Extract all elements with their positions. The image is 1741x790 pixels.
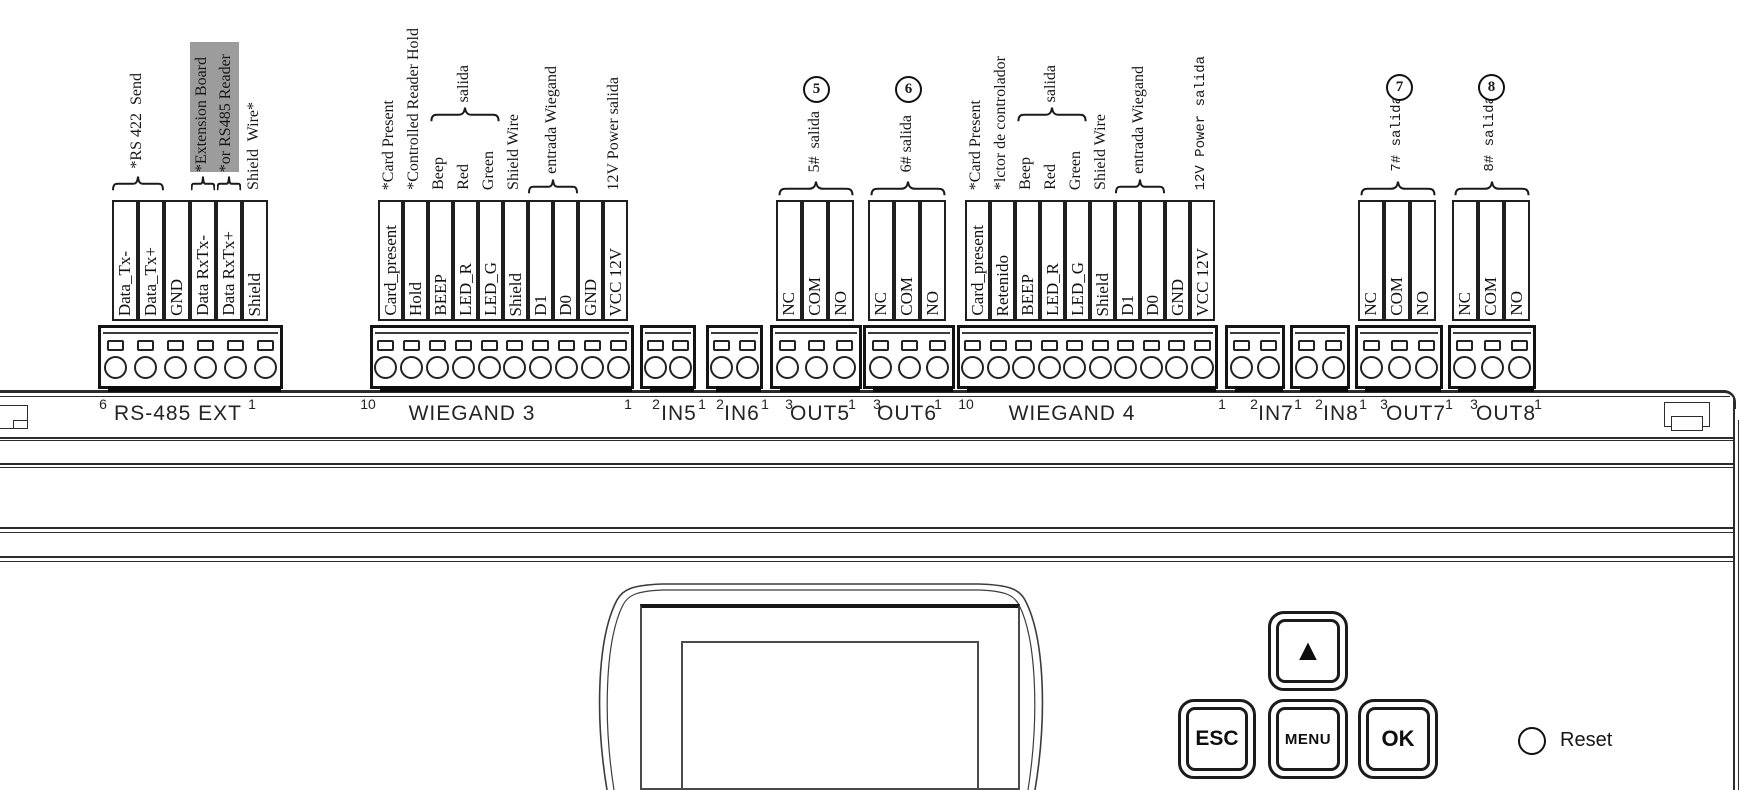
screw-icon [164, 356, 187, 379]
wire-clamp-icon [107, 340, 124, 351]
screw-icon [1481, 356, 1504, 379]
terminal-column: Data RxTx- [190, 200, 216, 321]
terminal-column: COM [1384, 200, 1410, 321]
terminal-label: VCC 12V [1194, 248, 1211, 316]
wire-clamp-icon [584, 340, 601, 351]
connector-wiegand4 [957, 325, 1218, 389]
pin-number: 1 [1359, 396, 1367, 412]
block-label-out7: OUT7 [1386, 402, 1446, 426]
pin-number: 1 [934, 396, 942, 412]
annotation-salida-out5: 5# salida [807, 111, 823, 172]
terminal-label: D0 [1144, 295, 1161, 316]
terminal-label: GND [582, 279, 599, 316]
connector-out8 [1448, 325, 1536, 389]
wire-clamp-icon [1117, 340, 1134, 351]
wire-clamp-icon [197, 340, 214, 351]
wire-clamp-icon [481, 340, 498, 351]
screw-icon [898, 356, 921, 379]
panel-groove-line [0, 467, 1735, 468]
pin-number: 1 [698, 396, 706, 412]
wire-clamp-icon [779, 340, 796, 351]
terminal-label: NO [924, 291, 941, 316]
screw-icon [833, 356, 856, 379]
screw-icon [1230, 356, 1253, 379]
annotation-controlled-reader-hold: *Controlled Reader Hold [406, 28, 422, 190]
up-arrow-icon: ▲ [1276, 619, 1340, 683]
terminal-pin [1411, 328, 1441, 379]
screw-icon [1360, 356, 1383, 379]
screw-icon [581, 356, 604, 379]
screw-icon [529, 356, 552, 379]
terminal-column: Data_Tx+ [138, 200, 164, 321]
pin-number: 1 [848, 396, 856, 412]
wire-clamp-icon [1298, 340, 1315, 351]
annotation-green-w4: Green [1068, 151, 1084, 190]
annotation-extension-board-line1: *Extension Board [194, 57, 210, 172]
wiring-diagram: Data_Tx- Data_Tx+ GND Data RxTx- Data Rx… [0, 0, 1741, 790]
circled-number-6: 6 [895, 76, 922, 103]
terminal-label: NC [872, 292, 889, 316]
wire-clamp-icon [377, 340, 394, 351]
wire-clamp-icon [1194, 340, 1211, 351]
annotation-salida-w4: salida [1043, 65, 1059, 102]
block-label-out6: OUT6 [877, 402, 937, 426]
annotation-beep: Beep [431, 157, 447, 190]
pin-number: 1 [1294, 396, 1302, 412]
annotation-shield-wire-w4: Shield Wire [1093, 114, 1109, 190]
terminal-pin [923, 328, 953, 379]
terminal-column: NC [1358, 200, 1384, 321]
connector-rs485-ext [98, 325, 283, 389]
annotation-card-present: *Card Present [381, 100, 397, 190]
pin-number: 6 [99, 396, 107, 412]
terminal-label: D1 [532, 295, 549, 316]
terminal-pin [603, 328, 633, 379]
terminal-column: NO [1410, 200, 1436, 321]
terminal-column: Shield [242, 200, 268, 321]
terminal-label: VCC 12V [607, 248, 624, 316]
terminal-column: BEEP [1015, 200, 1040, 321]
terminal-pin [1504, 328, 1534, 379]
connector-out5 [770, 325, 862, 389]
wire-clamp-icon [610, 340, 627, 351]
annotation-salida-out7: 7# salida [1390, 96, 1404, 172]
screw-icon [1063, 356, 1086, 379]
connector-out7 [1355, 325, 1443, 389]
terminal-label: Hold [407, 282, 424, 316]
wire-clamp-icon [429, 340, 446, 351]
up-button: ▲ [1268, 611, 1348, 691]
terminal-column: Hold [403, 200, 428, 321]
screw-icon [607, 356, 630, 379]
screw-icon [1089, 356, 1112, 379]
brace-entrada-w3 [528, 178, 578, 194]
pin-number: 2 [716, 396, 724, 412]
screw-icon [452, 356, 475, 379]
terminal-pin [220, 328, 250, 379]
annotation-red-w4: Red [1043, 164, 1059, 190]
screw-icon [134, 356, 157, 379]
terminal-column: GND [164, 200, 190, 321]
screw-icon [400, 356, 423, 379]
annotation-beep-w4: Beep [1018, 157, 1034, 190]
wire-clamp-icon [1143, 340, 1160, 351]
screw-icon [1453, 356, 1476, 379]
panel-right-edge-inner [1738, 420, 1739, 790]
terminal-column: LED_G [478, 200, 503, 321]
annotation-salida-out6: 6# salida [899, 115, 915, 172]
terminal-column: LED_R [1040, 200, 1065, 321]
terminal-pin [1187, 328, 1217, 379]
menu-button-label: MENU [1276, 707, 1340, 771]
connector-in6 [706, 325, 763, 389]
panel-right-edge [1733, 398, 1735, 790]
terminal-label: COM [1482, 277, 1499, 316]
terminal-label: Data_Tx+ [142, 247, 159, 316]
brace-out7 [1360, 180, 1436, 196]
pin-number: 1 [1218, 396, 1226, 412]
brace-out5 [778, 180, 854, 196]
screw-icon [426, 356, 449, 379]
terminal-column: NC [1452, 200, 1478, 321]
wire-clamp-icon [1168, 340, 1185, 351]
terminal-column: D0 [553, 200, 578, 321]
annotation-reader-controller: *lctor de controlador [993, 56, 1009, 190]
terminal-column: COM [802, 200, 828, 321]
terminal-pin [161, 328, 191, 379]
brace-salida-w3 [430, 106, 500, 122]
terminal-label: BEEP [432, 274, 449, 316]
terminal-pin [830, 328, 860, 379]
terminal-column: Retenido [990, 200, 1015, 321]
wire-clamp-icon [1418, 340, 1435, 351]
terminal-pin [1384, 328, 1414, 379]
pin-number: 2 [1315, 396, 1323, 412]
esc-button-label: ESC [1186, 707, 1248, 771]
annotation-entrada-wiegand-w3: entrada Wiegand [544, 66, 560, 174]
screw-icon [104, 356, 127, 379]
wire-clamp-icon [1041, 340, 1058, 351]
panel-groove-line [0, 561, 1734, 562]
wire-clamp-icon [1066, 340, 1083, 351]
terminal-pin [1477, 328, 1507, 379]
connector-out6 [863, 325, 955, 389]
wire-clamp-icon [872, 340, 889, 351]
block-label-out5: OUT5 [790, 402, 850, 426]
menu-button: MENU [1268, 699, 1348, 779]
terminal-pin [1450, 328, 1480, 379]
terminal-label: Card_present [382, 225, 399, 316]
screw-icon [961, 356, 984, 379]
pin-number: 1 [1534, 396, 1542, 412]
wire-clamp-icon [1092, 340, 1109, 351]
terminal-pin [131, 328, 161, 379]
terminal-label: NC [1456, 292, 1473, 316]
screw-icon [478, 356, 501, 379]
screw-icon [1388, 356, 1411, 379]
terminal-column: Data RxTx+ [216, 200, 242, 321]
terminal-label: COM [806, 277, 823, 316]
brace-ext-board-2 [217, 175, 241, 191]
wire-clamp-icon [1325, 340, 1342, 351]
terminal-label: Data RxTx- [194, 235, 211, 316]
terminal-pin [801, 328, 831, 379]
lcd-screen [681, 641, 979, 790]
terminal-label: GND [168, 279, 185, 316]
wire-clamp-icon [227, 340, 244, 351]
brace-out6 [870, 180, 946, 196]
connector-in7 [1225, 325, 1285, 389]
annotation-salida-out8: 8# salida [1483, 96, 1497, 172]
panel-groove-line [0, 532, 1734, 533]
wire-clamp-icon [1363, 340, 1380, 351]
brace-out8 [1454, 180, 1530, 196]
screw-icon [555, 356, 578, 379]
wire-clamp-icon [808, 340, 825, 351]
terminal-column: VCC 12V [1190, 200, 1215, 321]
terminal-column: Card_present [378, 200, 403, 321]
pin-number: 1 [761, 396, 769, 412]
terminal-column: D0 [1140, 200, 1165, 321]
screw-icon [1295, 356, 1318, 379]
terminal-pin [894, 328, 924, 379]
annotation-12v-power-w4: 12V Power salida [1194, 56, 1208, 190]
reset-label: Reset [1560, 729, 1612, 752]
pin-number: 2 [1250, 396, 1258, 412]
annotation-card-present-w4: *Card Present [968, 100, 984, 190]
pin-number: 10 [958, 396, 974, 412]
screw-icon [224, 356, 247, 379]
screw-icon [254, 356, 277, 379]
reset-button [1518, 727, 1546, 755]
terminal-column: BEEP [428, 200, 453, 321]
annotation-red: Red [456, 164, 472, 190]
terminal-column: LED_R [453, 200, 478, 321]
connector-wiegand3 [370, 325, 634, 389]
connector-in5 [640, 325, 696, 389]
wire-clamp-icon [532, 340, 549, 351]
screw-icon [1191, 356, 1214, 379]
block-label-wiegand3: WIEGAND 3 [409, 402, 536, 426]
terminal-pin [772, 328, 802, 379]
terminal-column: GND [1165, 200, 1190, 321]
terminal-label: Shield [1094, 273, 1111, 316]
annotation-green: Green [481, 151, 497, 190]
terminal-label: BEEP [1019, 274, 1036, 316]
terminal-label: NO [1508, 291, 1525, 316]
wire-clamp-icon [1015, 340, 1032, 351]
annotation-entrada-wiegand-w4: entrada Wiegand [1131, 66, 1147, 174]
terminal-label: Shield [507, 273, 524, 316]
pin-number: 1 [624, 396, 632, 412]
block-label-in8: IN8 [1323, 402, 1359, 426]
screw-icon [1012, 356, 1035, 379]
terminal-label: LED_G [482, 262, 499, 316]
terminal-pin [1254, 328, 1284, 379]
wire-clamp-icon [1484, 340, 1501, 351]
pin-number: 1 [1445, 396, 1453, 412]
brace-entrada-w4 [1115, 178, 1165, 194]
screw-icon [869, 356, 892, 379]
terminal-pin [1319, 328, 1349, 379]
terminal-pin [1357, 328, 1387, 379]
screw-icon [987, 356, 1010, 379]
wire-clamp-icon [901, 340, 918, 351]
wire-clamp-icon [506, 340, 523, 351]
terminal-pin [732, 328, 762, 379]
annotation-rs422-send: *RS 422 Send [129, 73, 145, 169]
screw-icon [1508, 356, 1531, 379]
wire-clamp-icon [836, 340, 853, 351]
panel-groove-line [0, 437, 1733, 439]
terminal-label: COM [1388, 277, 1405, 316]
terminal-label: Shield [246, 273, 263, 316]
connector-in8 [1290, 325, 1350, 389]
panel-groove-line [0, 440, 1733, 441]
block-label-rs485-ext: RS-485 EXT [114, 402, 242, 426]
wire-clamp-icon [647, 340, 664, 351]
terminal-column: NO [920, 200, 946, 321]
terminal-label: Data_Tx- [116, 251, 133, 316]
circled-number-7: 7 [1386, 74, 1413, 101]
terminal-label: COM [898, 277, 915, 316]
terminal-label: NO [1414, 291, 1431, 316]
wire-clamp-icon [1511, 340, 1528, 351]
panel-groove-line [0, 463, 1735, 465]
screw-icon [669, 356, 692, 379]
terminal-pin [101, 328, 131, 379]
brace-rs422 [112, 175, 164, 191]
annotation-shield-wire-w3: Shield Wire [506, 114, 522, 190]
wire-clamp-icon [403, 340, 420, 351]
screw-icon [1165, 356, 1188, 379]
wire-clamp-icon [558, 340, 575, 351]
terminal-label: NC [780, 292, 797, 316]
terminal-pin [1292, 328, 1322, 379]
screw-icon [1140, 356, 1163, 379]
terminal-label: NC [1362, 292, 1379, 316]
screw-icon [1322, 356, 1345, 379]
wire-clamp-icon [672, 340, 689, 351]
panel-corner [1716, 390, 1736, 409]
terminal-column: NC [776, 200, 802, 321]
wire-clamp-icon [1260, 340, 1277, 351]
right-clip-latch [1671, 416, 1703, 431]
terminal-pin [250, 328, 280, 379]
screw-icon [1114, 356, 1137, 379]
block-label-in7: IN7 [1258, 402, 1294, 426]
wire-clamp-icon [1456, 340, 1473, 351]
pin-number: 10 [360, 396, 376, 412]
wire-clamp-icon [257, 340, 274, 351]
screw-icon [644, 356, 667, 379]
terminal-column: VCC 12V [603, 200, 628, 321]
brace-salida-w4 [1017, 106, 1087, 122]
terminal-label: D0 [557, 295, 574, 316]
terminal-pin [865, 328, 895, 379]
screw-icon [736, 356, 759, 379]
terminal-column: Data_Tx- [112, 200, 138, 321]
terminal-column: COM [1478, 200, 1504, 321]
terminal-pin [190, 328, 220, 379]
pin-number: 1 [248, 396, 256, 412]
terminal-column: D1 [528, 200, 553, 321]
terminal-column: Shield [1090, 200, 1115, 321]
terminal-column: Shield [503, 200, 528, 321]
wire-clamp-icon [137, 340, 154, 351]
terminal-pin [1227, 328, 1257, 379]
annotation-12v-power-w3: 12V Power salida [606, 77, 622, 190]
screw-icon [926, 356, 949, 379]
wire-clamp-icon [713, 340, 730, 351]
wire-clamp-icon [167, 340, 184, 351]
left-clip-notch [13, 420, 28, 429]
wire-clamp-icon [739, 340, 756, 351]
block-label-in6: IN6 [724, 402, 760, 426]
terminal-column: Card_present [965, 200, 990, 321]
esc-button: ESC [1178, 699, 1256, 779]
wire-clamp-icon [990, 340, 1007, 351]
screw-icon [503, 356, 526, 379]
screw-icon [194, 356, 217, 379]
terminal-label: NO [832, 291, 849, 316]
screw-icon [1415, 356, 1438, 379]
terminal-column: LED_G [1065, 200, 1090, 321]
block-label-in5: IN5 [661, 402, 697, 426]
terminal-column: NO [1504, 200, 1530, 321]
panel-groove-line [0, 527, 1734, 529]
wire-clamp-icon [964, 340, 981, 351]
wire-clamp-icon [929, 340, 946, 351]
terminal-label: Data RxTx+ [220, 231, 237, 316]
panel-groove-line [0, 556, 1734, 558]
terminal-label: LED_G [1069, 262, 1086, 316]
wire-clamp-icon [1233, 340, 1250, 351]
terminal-label: D1 [1119, 295, 1136, 316]
terminal-label: GND [1169, 279, 1186, 316]
block-label-out8: OUT8 [1476, 402, 1536, 426]
terminal-label: Card_present [969, 225, 986, 316]
terminal-column: COM [894, 200, 920, 321]
wire-clamp-icon [1391, 340, 1408, 351]
terminal-column: NC [868, 200, 894, 321]
brace-ext-board-1 [191, 175, 215, 191]
ok-button: OK [1358, 699, 1438, 779]
terminal-label: LED_R [457, 263, 474, 316]
screw-icon [1257, 356, 1280, 379]
terminal-column: NO [828, 200, 854, 321]
terminal-column: GND [578, 200, 603, 321]
terminal-pin [666, 328, 696, 379]
screw-icon [374, 356, 397, 379]
terminal-column: D1 [1115, 200, 1140, 321]
wire-clamp-icon [455, 340, 472, 351]
terminal-label: Retenido [994, 255, 1011, 316]
screw-icon [1038, 356, 1061, 379]
screw-icon [710, 356, 733, 379]
screw-icon [776, 356, 799, 379]
terminal-label: LED_R [1044, 263, 1061, 316]
ok-button-label: OK [1366, 707, 1430, 771]
annotation-salida-w3: salida [456, 65, 472, 102]
annotation-shield-wire: Shield Wire* [246, 102, 262, 190]
circled-number-5: 5 [803, 76, 830, 103]
annotation-extension-board-line2: *or RS485 Reader [218, 54, 234, 172]
circled-number-8: 8 [1478, 74, 1505, 101]
screw-icon [805, 356, 828, 379]
pin-number: 2 [652, 396, 660, 412]
block-label-wiegand4: WIEGAND 4 [1009, 402, 1136, 426]
